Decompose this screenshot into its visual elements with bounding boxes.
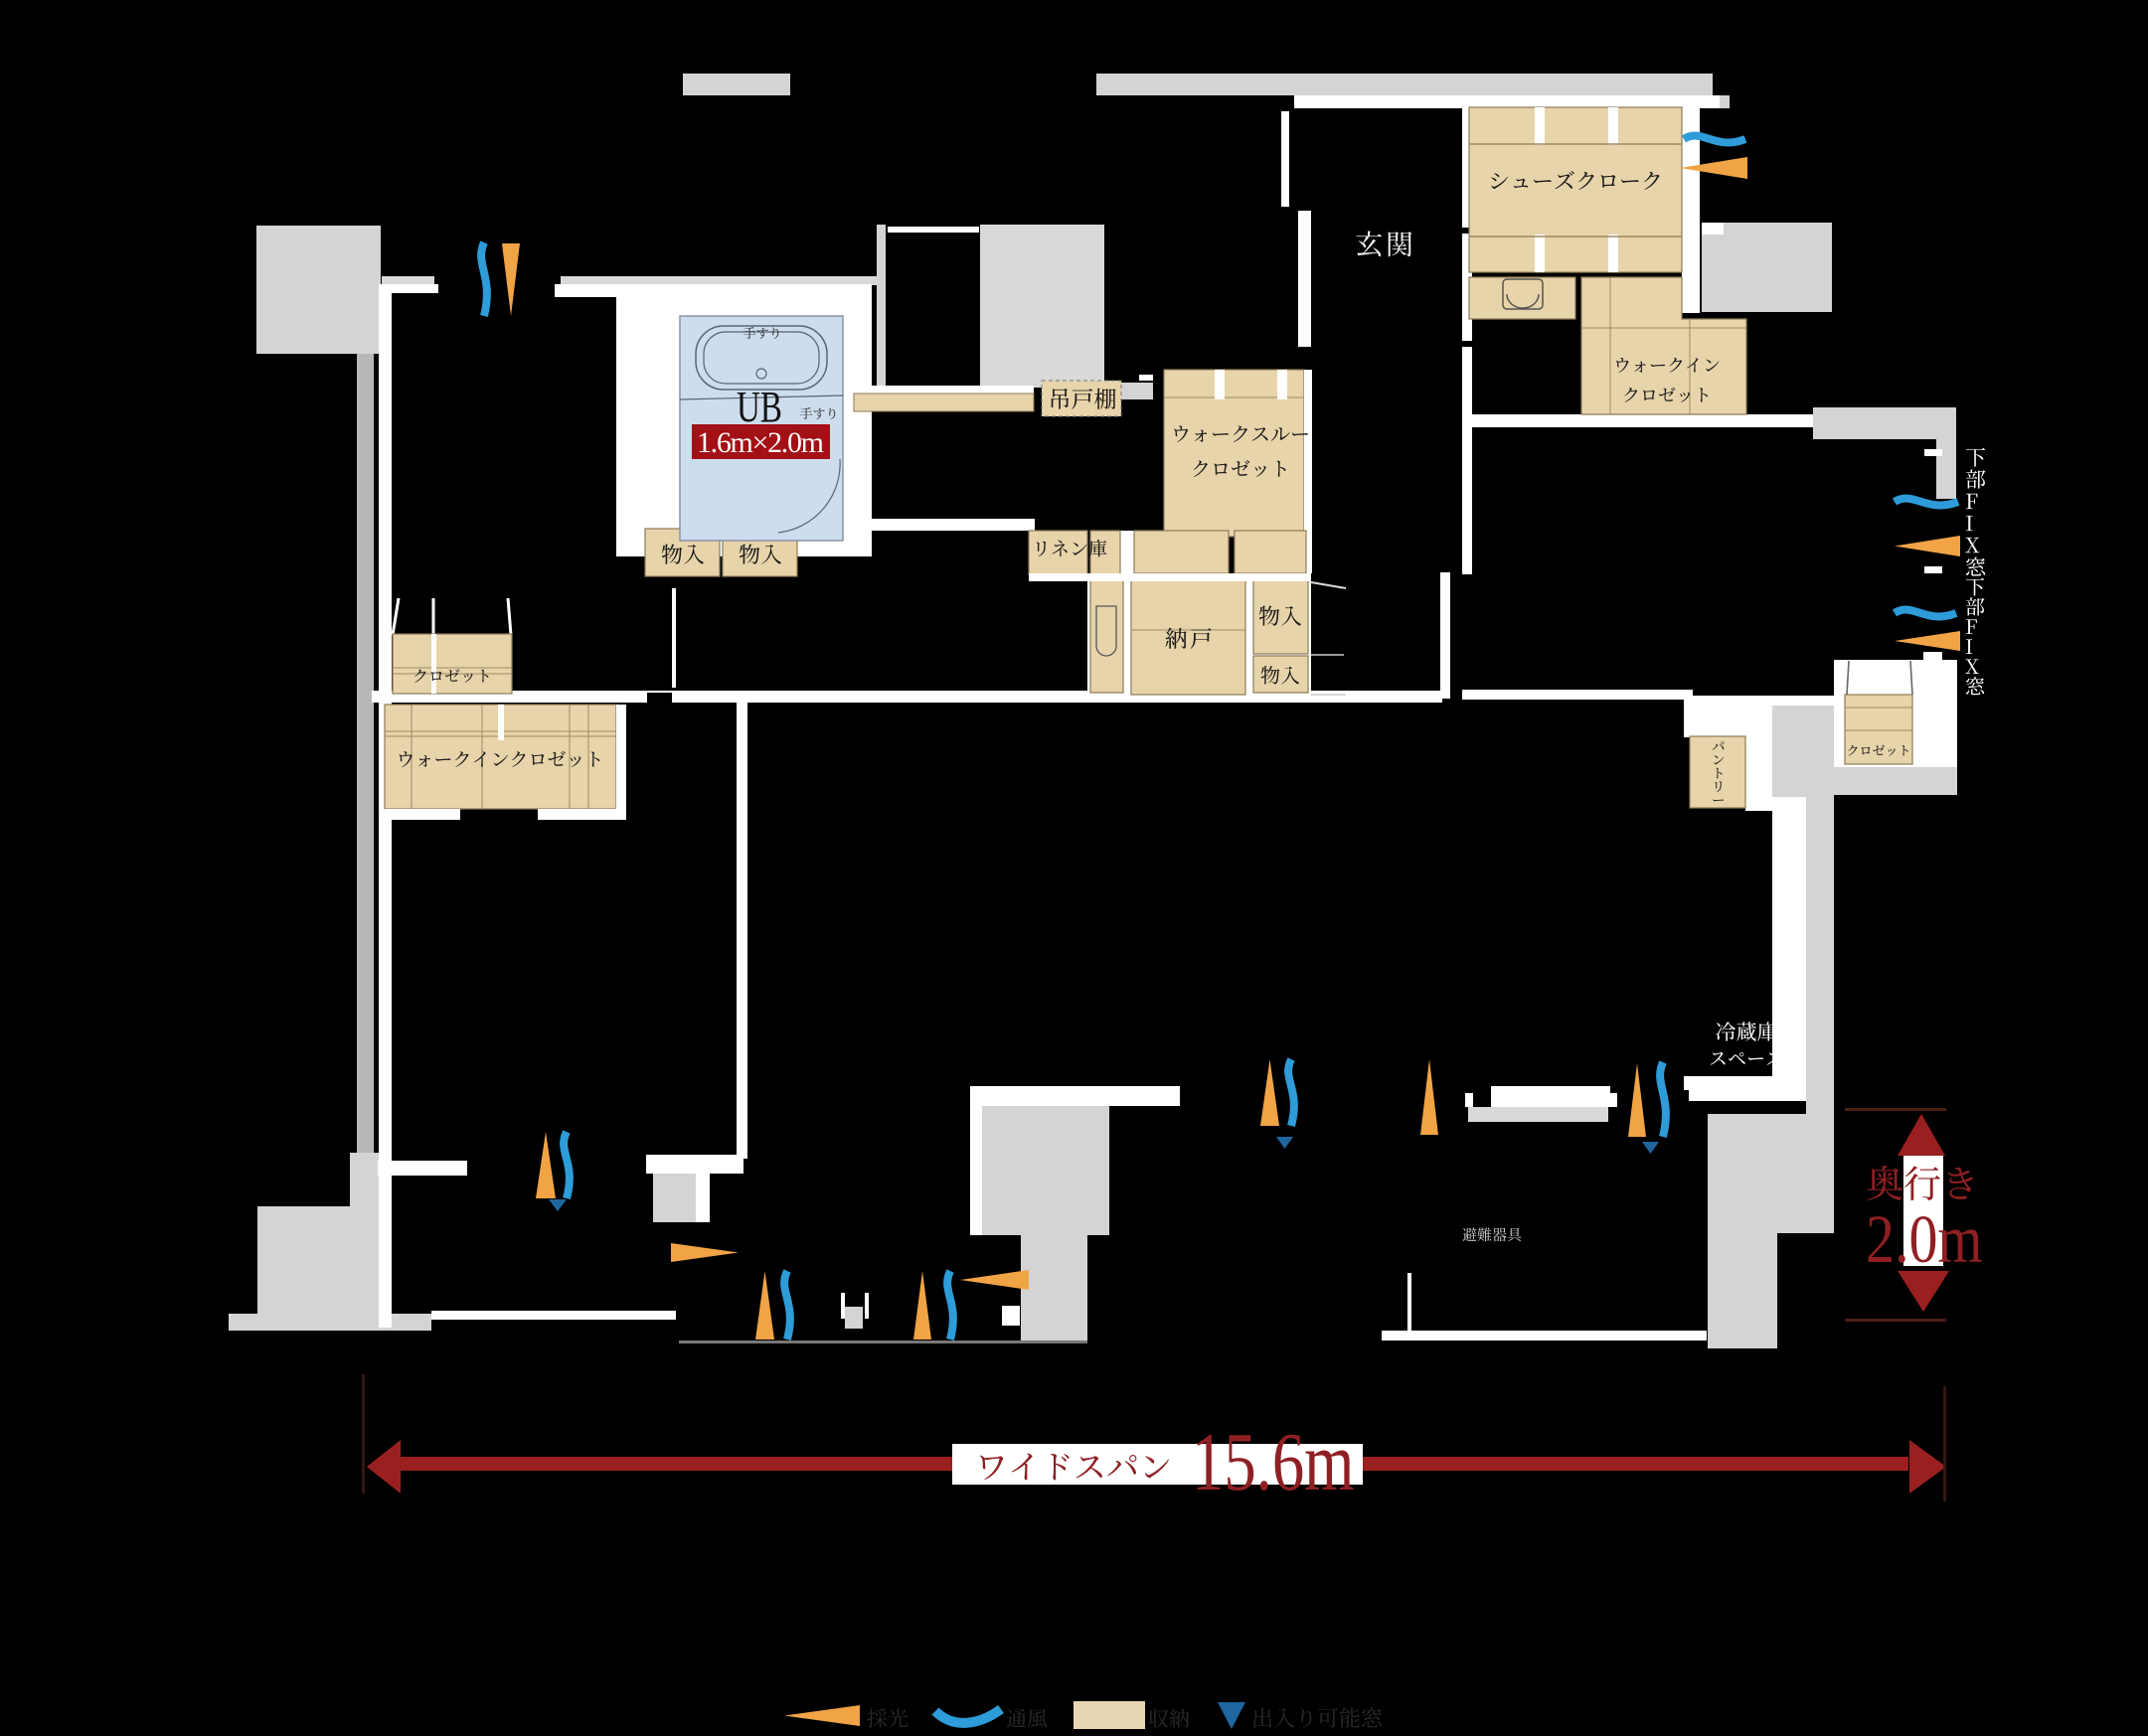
svg-text:15.6m: 15.6m	[1192, 1416, 1354, 1508]
svg-text:2.0m: 2.0m	[1866, 1200, 1983, 1277]
svg-text:1.6m×2.0m: 1.6m×2.0m	[697, 426, 824, 459]
svg-text:UB: UB	[737, 384, 782, 432]
